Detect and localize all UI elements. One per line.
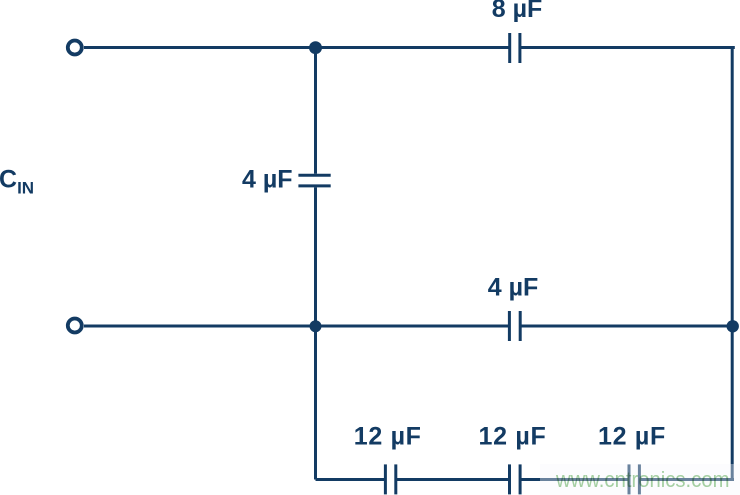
svg-text:12 µF: 12 µF [479,422,547,450]
svg-text:4 µF: 4 µF [242,165,293,193]
svg-text:12 µF: 12 µF [598,422,666,450]
svg-text:CIN: CIN [0,165,34,197]
svg-text:12 µF: 12 µF [354,422,422,450]
svg-text:www.cntronics.com: www.cntronics.com [555,467,729,492]
svg-text:8 µF: 8 µF [492,0,543,23]
svg-text:4 µF: 4 µF [488,274,539,302]
